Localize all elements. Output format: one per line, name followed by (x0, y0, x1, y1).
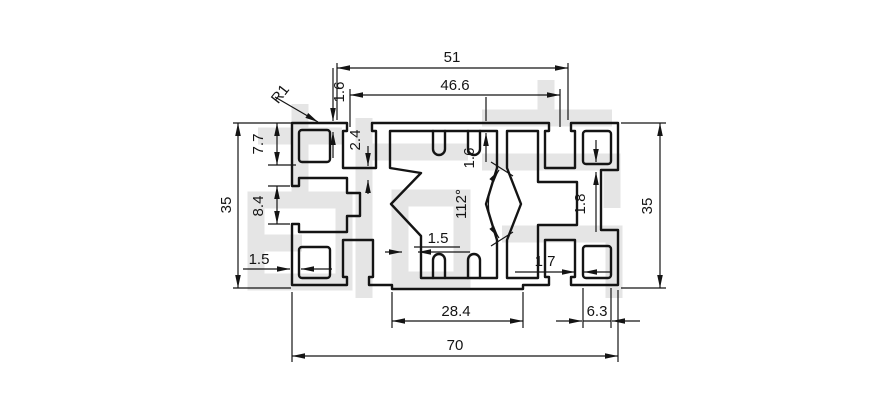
dim-center-angle: 112° (453, 189, 470, 219)
dim-bottom-center-width: 28.4 (441, 303, 470, 320)
dim-top-slot-floor: 2.4 (347, 130, 364, 151)
dim-total-width: 70 (447, 337, 464, 354)
dim-right-height: 35 (639, 198, 656, 215)
dim-top-center-wall: 1.6 (461, 148, 478, 169)
dim-top-inner-width: 46.6 (440, 77, 469, 94)
dim-bottom-right-wall: 1.7 (535, 253, 556, 270)
dim-corner-radius: R1 (268, 81, 293, 107)
dim-left-slot-height: 8.4 (250, 196, 267, 217)
dim-top-left-wall: 1.6 (331, 82, 348, 103)
dim-left-box-depth: 7.7 (250, 134, 267, 155)
dim-right-wall: 1.8 (572, 194, 589, 215)
dimarc-112 (488, 170, 499, 238)
dim-center-wall: 1.5 (428, 230, 449, 247)
technical-drawing-page: 51 46.6 R1 1.6 7.7 2.4 35 8.4 1.5 1.5 1.… (0, 0, 880, 420)
dim-top-outer-width: 51 (444, 49, 461, 66)
dim-left-height: 35 (218, 197, 235, 214)
dim-bottom-right-width: 6.3 (587, 303, 608, 320)
dim-bottom-left-wall: 1.5 (249, 251, 270, 268)
cavity-box-bottom-left (299, 247, 330, 278)
profile-drawing: 51 46.6 R1 1.6 7.7 2.4 35 8.4 1.5 1.5 1.… (0, 0, 880, 420)
